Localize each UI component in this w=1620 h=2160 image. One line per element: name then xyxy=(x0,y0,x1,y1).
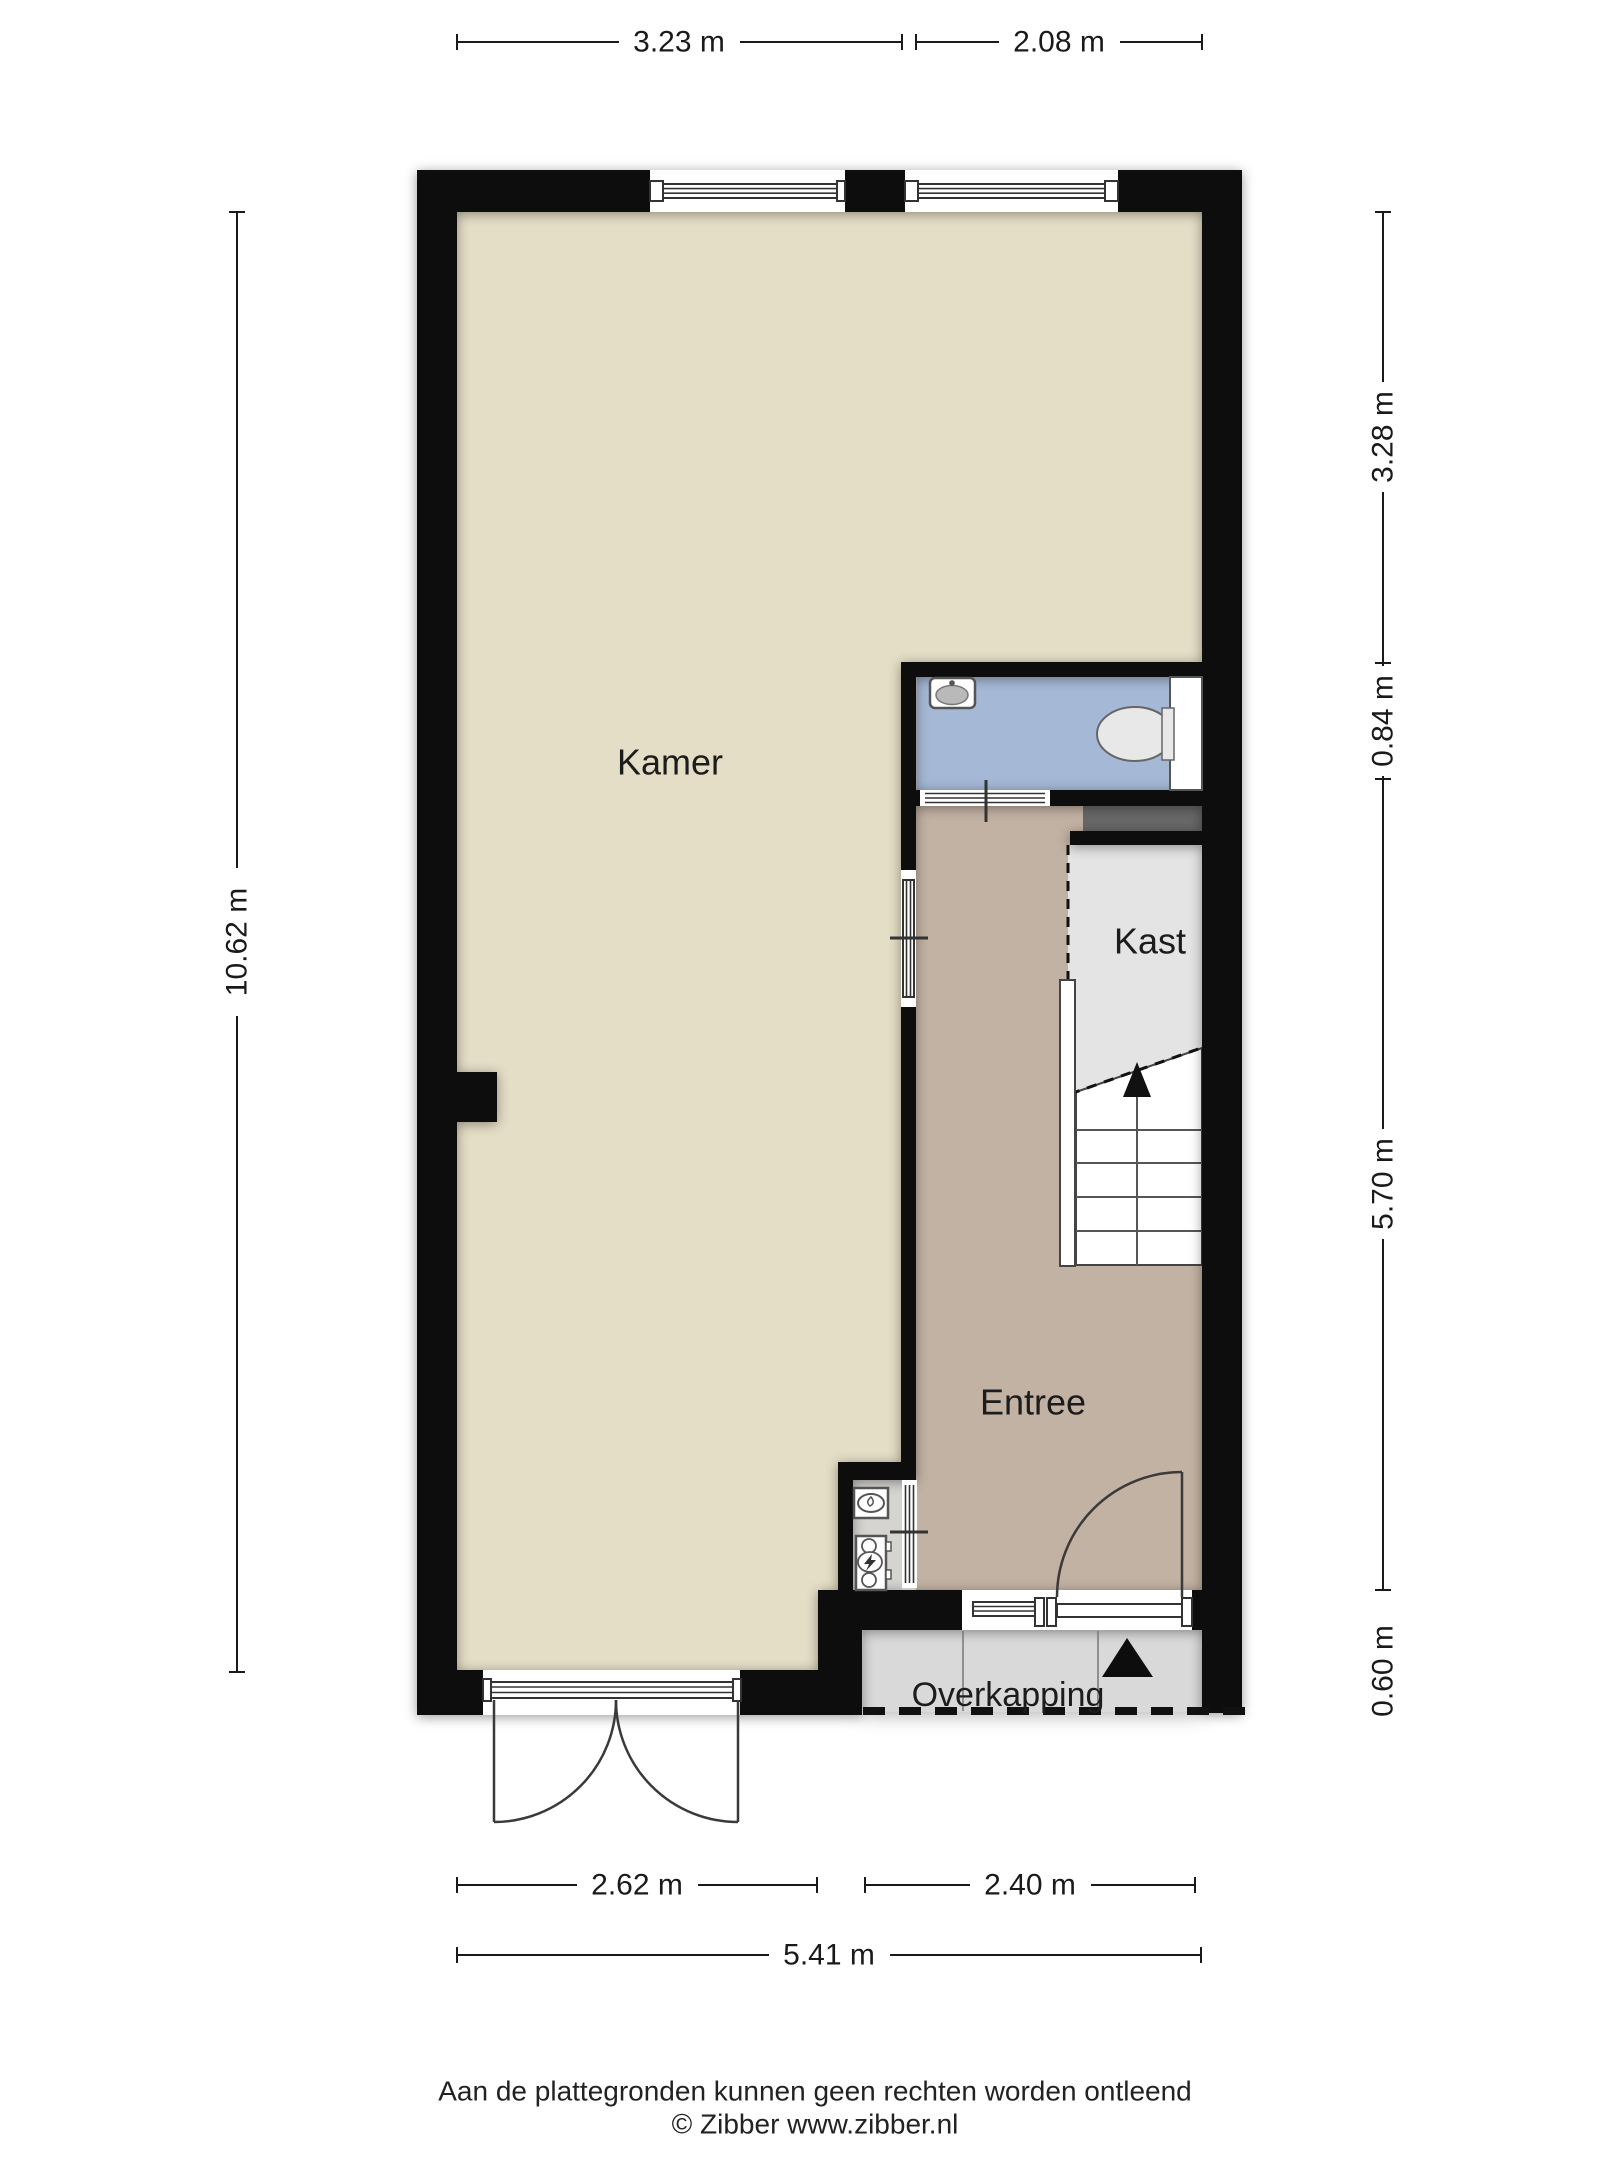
svg-text:2.40 m: 2.40 m xyxy=(984,1869,1076,1902)
room-label-kast: Kast xyxy=(1114,921,1186,962)
niche-block xyxy=(1083,806,1202,831)
svg-text:0.60 m: 0.60 m xyxy=(1367,1625,1400,1717)
dim-right-1: 3.28 m xyxy=(1365,212,1401,663)
dim-top-2: 2.08 m xyxy=(916,24,1202,60)
dim-right-2: 0.84 m xyxy=(1365,663,1401,779)
wall-left xyxy=(417,212,457,1715)
svg-text:2.62 m: 2.62 m xyxy=(591,1869,683,1902)
footer: Aan de plattegronden kunnen geen rechten… xyxy=(438,2076,1191,2140)
room-label-kamer: Kamer xyxy=(617,742,723,783)
floorplan-page: Kamer Entree Kast Overkapping 3.23 m 2.0… xyxy=(0,0,1620,2160)
boiler-icon xyxy=(854,1488,888,1518)
footer-disclaimer: Aan de plattegronden kunnen geen rechten… xyxy=(438,2076,1191,2107)
garden-door-left-leaf xyxy=(494,1700,616,1822)
footer-copyright: © Zibber www.zibber.nl xyxy=(672,2109,959,2140)
dim-bottom-overall: 5.41 m xyxy=(457,1937,1201,1973)
wall-kast-top xyxy=(1070,831,1202,845)
dim-top-1: 3.23 m xyxy=(457,24,902,60)
svg-text:10.62 m: 10.62 m xyxy=(221,888,254,996)
front-door-opening xyxy=(962,1590,1192,1630)
window-top-2 xyxy=(905,170,1118,212)
floorplan-svg: Kamer Entree Kast Overkapping 3.23 m 2.0… xyxy=(0,0,1620,2160)
stair-rail xyxy=(1060,980,1075,1266)
svg-text:2.08 m: 2.08 m xyxy=(1013,26,1105,59)
dim-left-1: 10.62 m xyxy=(219,212,255,1672)
room-label-entree: Entree xyxy=(980,1382,1086,1423)
dim-bottom-2: 2.40 m xyxy=(865,1867,1195,1903)
garden-door-right-leaf xyxy=(616,1700,738,1822)
svg-text:5.70 m: 5.70 m xyxy=(1367,1138,1400,1230)
wall-bathroom-top xyxy=(901,662,1202,677)
floors xyxy=(457,212,1202,1712)
svg-text:5.41 m: 5.41 m xyxy=(783,1939,875,1972)
svg-text:0.84 m: 0.84 m xyxy=(1367,675,1400,767)
room-label-overkapping: Overkapping xyxy=(912,1676,1105,1714)
garden-door-opening xyxy=(483,1670,741,1715)
wall-meterkast-left xyxy=(838,1462,853,1590)
dim-right-3: 5.70 m xyxy=(1365,779,1401,1590)
wall-interior-vertical xyxy=(901,662,916,1480)
svg-text:3.23 m: 3.23 m xyxy=(633,26,725,59)
svg-text:3.28 m: 3.28 m xyxy=(1367,391,1400,483)
dim-right-4: 0.60 m xyxy=(1365,1616,1401,1726)
wall-left-bump xyxy=(457,1072,497,1122)
electric-meter-icon xyxy=(856,1536,891,1590)
window-top-1 xyxy=(650,170,845,212)
dim-bottom-1: 2.62 m xyxy=(457,1867,817,1903)
sink-icon xyxy=(930,678,975,708)
wall-right xyxy=(1202,212,1242,1713)
